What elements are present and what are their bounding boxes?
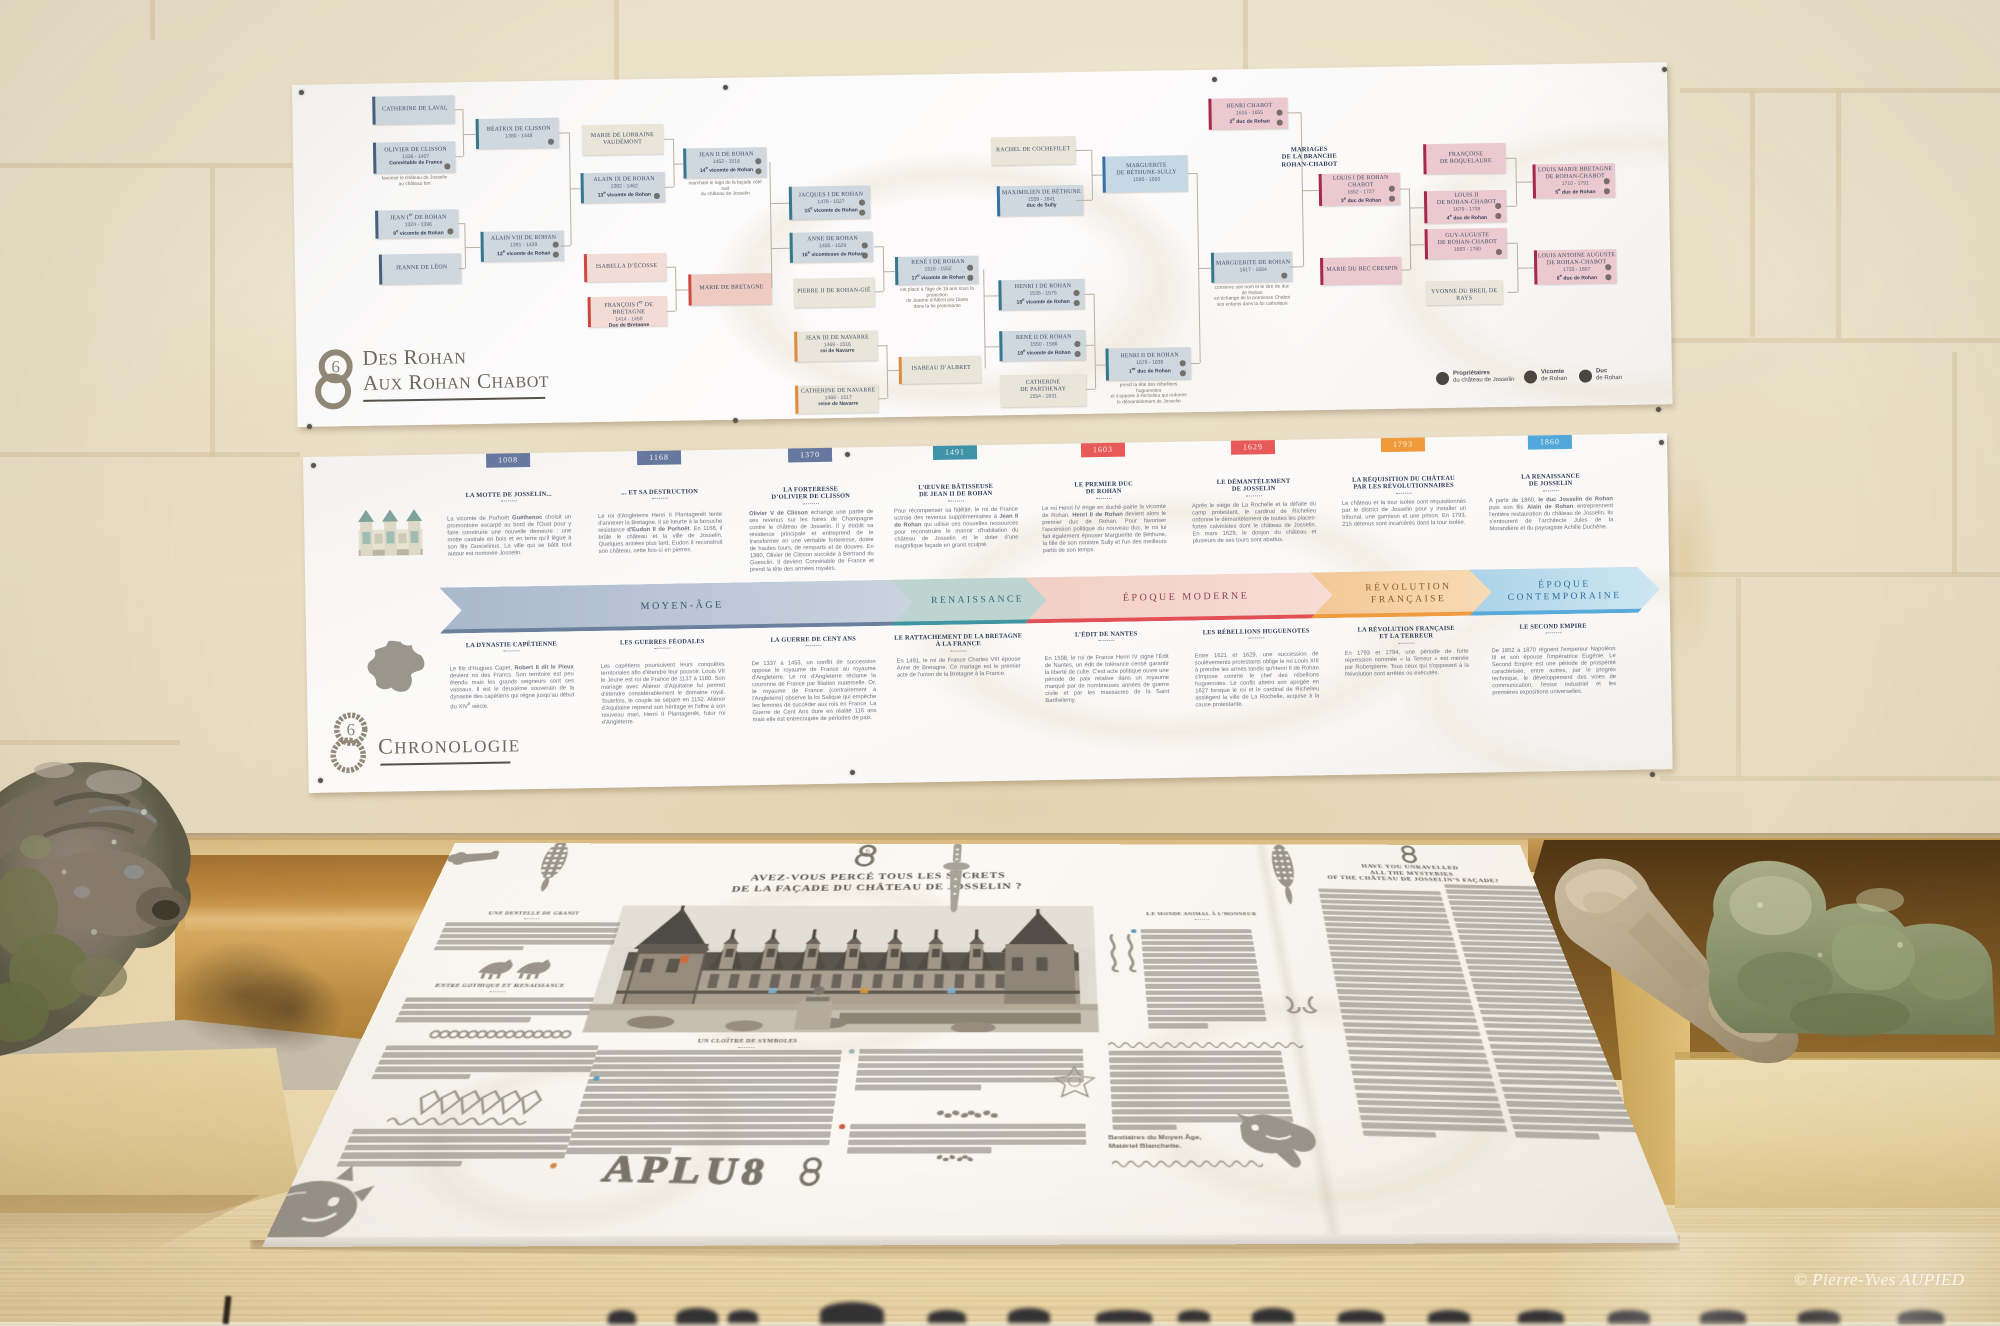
svg-text:6: 6 [346, 720, 355, 739]
svg-text:6: 6 [865, 849, 871, 855]
svg-text:6: 6 [331, 357, 340, 376]
